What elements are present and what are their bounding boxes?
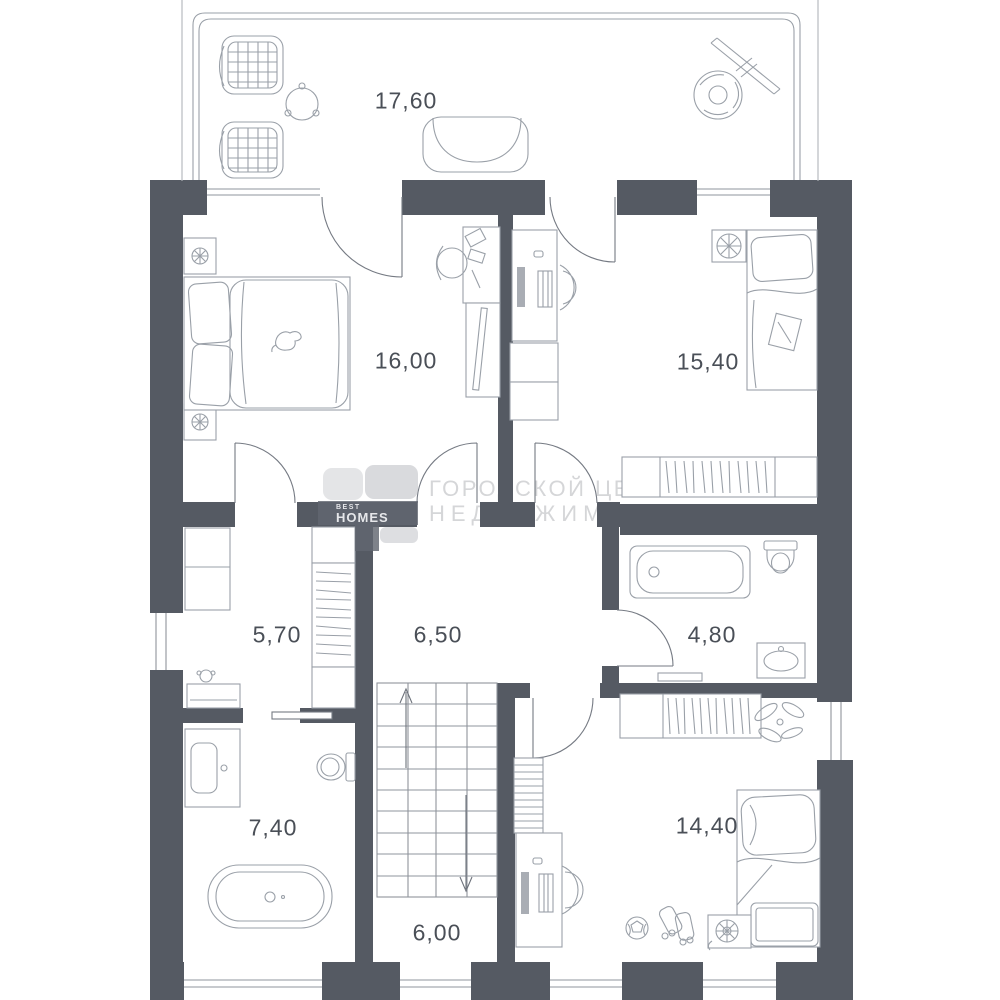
door-bedroom-left-closet <box>235 443 295 503</box>
bookshelf <box>514 758 543 833</box>
toilet-small <box>764 541 797 573</box>
double-bed <box>184 277 350 410</box>
logo-stem <box>355 525 379 551</box>
closet-cabinet <box>185 528 230 610</box>
wicker-chair-2 <box>220 122 284 178</box>
closet-furniture <box>185 527 355 708</box>
door-hall-bedroom-right <box>535 443 597 503</box>
desk-right-bedroom <box>512 230 557 341</box>
room-label-wardrobe: 5,70 <box>253 622 302 649</box>
logo-square-3 <box>380 527 418 543</box>
wardrobe-right-bedroom <box>622 457 817 497</box>
tv-stand <box>466 303 500 397</box>
room-label-terrace: 17,60 <box>375 88 438 115</box>
room-label-bathroom-small: 4,80 <box>688 622 737 649</box>
radiator-bathroom <box>658 673 702 681</box>
chair-left-bedroom <box>436 246 467 280</box>
bedroom-bottom-furniture <box>514 694 820 950</box>
room-label-bedroom-right: 15,40 <box>677 349 740 376</box>
room-label-bathroom-large: 7,40 <box>249 815 298 842</box>
chair-bottom-bedroom <box>562 866 583 914</box>
door-terrace-bedroom-left <box>322 197 402 277</box>
sink-small <box>757 643 805 678</box>
room-label-stair-hall: 6,00 <box>413 920 462 947</box>
terrace-furniture <box>220 36 781 178</box>
door-terrace-bedroom-right <box>550 197 615 262</box>
logo-square-1 <box>323 468 363 500</box>
bedroom-left-furniture <box>184 227 500 440</box>
cabinet-right-bedroom <box>510 343 558 420</box>
wardrobe-bottom-bedroom <box>620 694 761 738</box>
soccer-ball <box>626 917 648 939</box>
bedroom-right-furniture <box>510 230 817 497</box>
desk-left-bedroom <box>463 227 500 303</box>
chair-right-bedroom <box>560 265 576 310</box>
single-bed-right <box>747 230 817 390</box>
radiator-unit <box>712 230 746 262</box>
closet-rack <box>312 527 355 708</box>
freestanding-bathtub <box>208 865 332 928</box>
toilet-large <box>317 753 355 781</box>
room-label-bedroom-bottom: 14,40 <box>676 813 739 840</box>
best-homes-logo: BEST HOMES <box>318 452 424 554</box>
logo-band: BEST HOMES <box>318 501 418 525</box>
roller-skates <box>658 905 695 945</box>
nightstand-top <box>184 238 216 274</box>
bathroom-small-fixtures <box>630 541 805 681</box>
door-hall-bedroom-bottom <box>533 698 593 758</box>
door-hall-bedroom-left <box>417 443 477 503</box>
floor-plan: ГОРОДСКОЙ ЦЕНТР НЕДВИЖИМОСТИ <box>0 0 1000 1000</box>
desk-bottom-bedroom <box>516 833 562 947</box>
logo-text-homes: HOMES <box>336 512 418 524</box>
curved-bench <box>423 117 528 172</box>
room-label-bedroom-left: 16,00 <box>375 348 438 375</box>
staircase <box>377 683 497 897</box>
room-label-hallway: 6,50 <box>414 622 463 649</box>
fan-table <box>708 915 751 950</box>
side-table <box>285 83 319 120</box>
wicker-chair-1 <box>220 36 284 94</box>
sliding-door-bathroom-large <box>272 712 332 719</box>
logo-square-2 <box>365 465 418 499</box>
door-hall-bathroom-small <box>617 610 673 666</box>
plan-linework <box>0 0 1000 1000</box>
potted-plant <box>694 71 742 119</box>
closet-dresser <box>187 670 240 708</box>
vanity-sink-large <box>185 729 240 807</box>
sun-lounger <box>711 38 780 94</box>
bathtub-small <box>630 546 750 598</box>
